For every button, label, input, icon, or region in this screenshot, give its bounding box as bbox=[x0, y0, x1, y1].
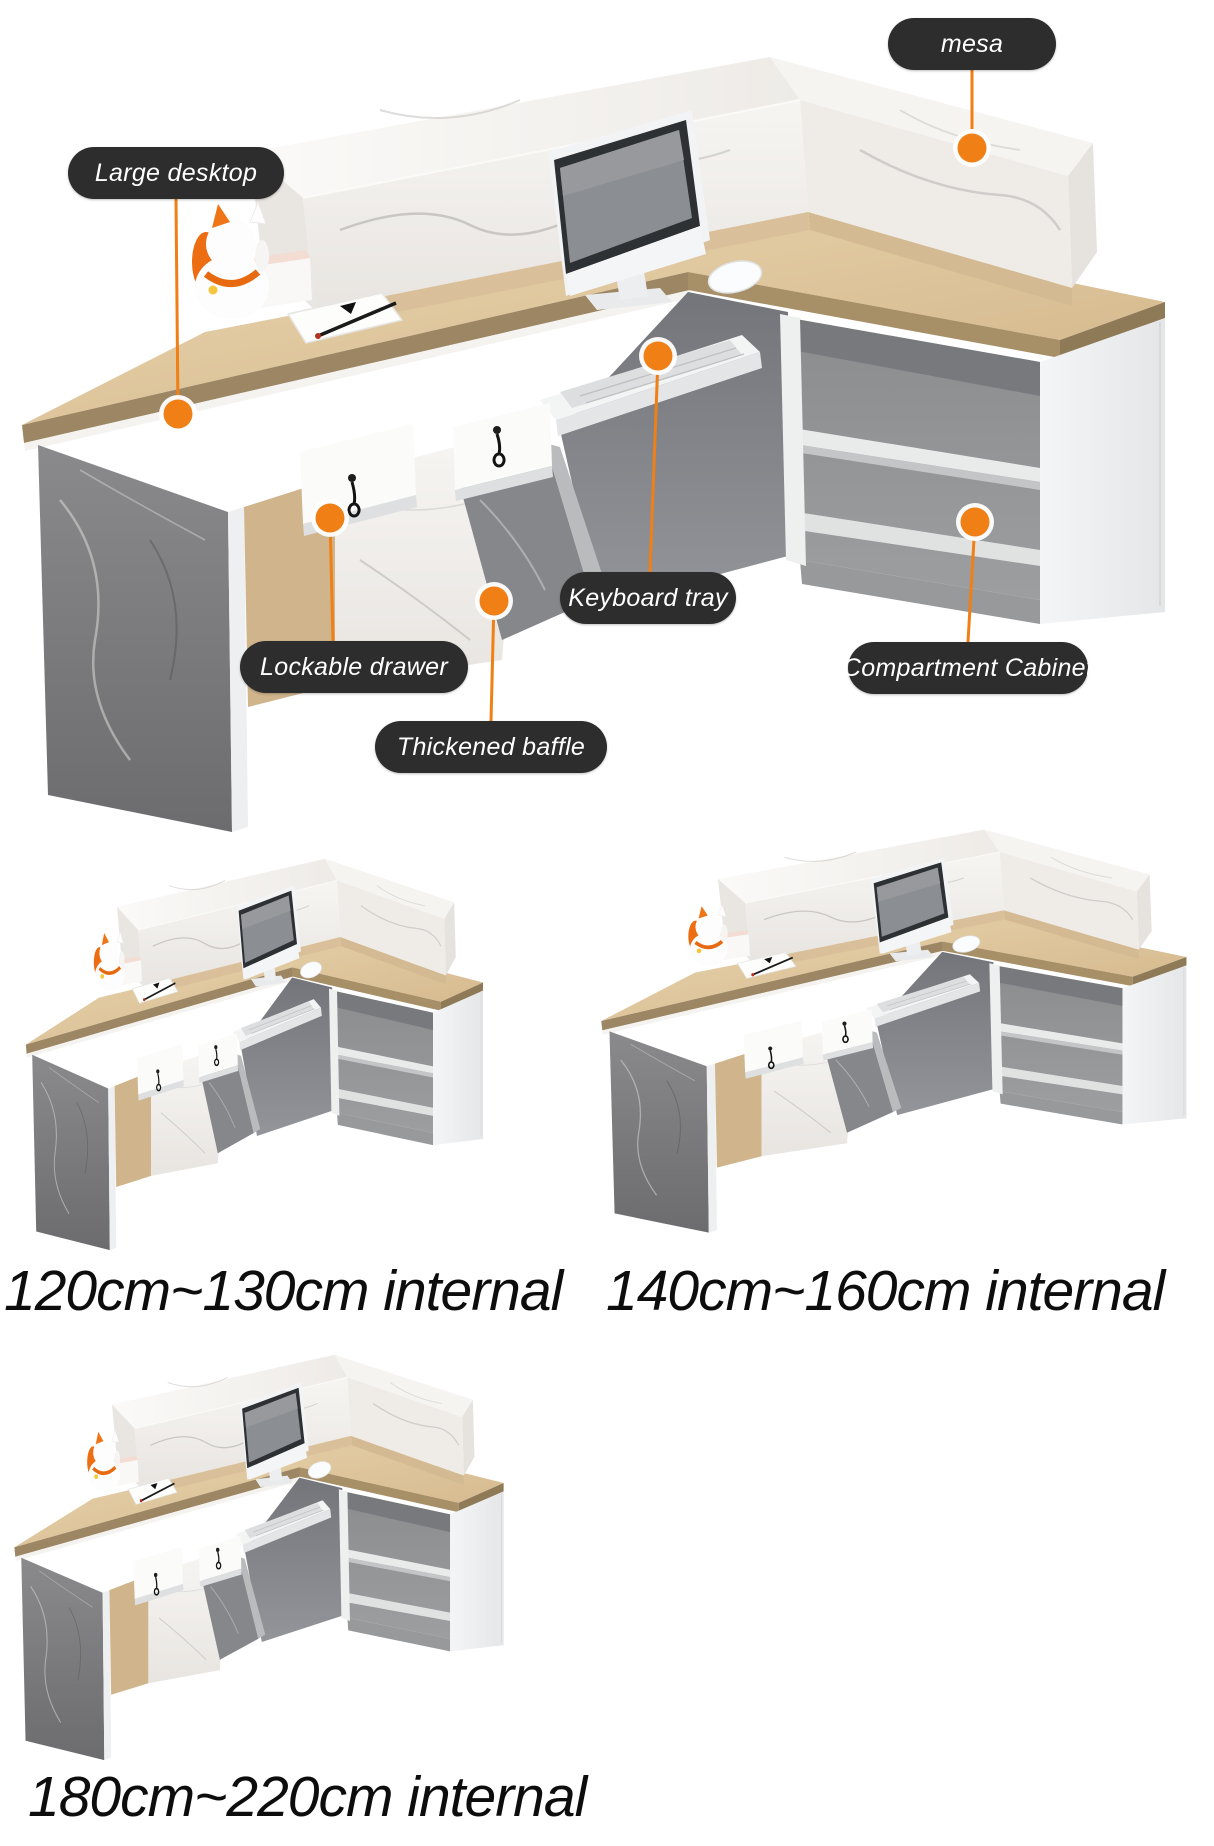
callout-dot-lockable-drawer bbox=[311, 499, 349, 537]
callout-label-compartment-cabinet: Compartment Cabinet bbox=[843, 654, 1093, 683]
variant-desk-medium bbox=[601, 830, 1186, 1233]
callout-dot-keyboard-tray bbox=[639, 337, 677, 375]
product-infographic: mesa Large desktop Lockable drawer Keybo… bbox=[0, 0, 1214, 1846]
callout-label-mesa: mesa bbox=[941, 30, 1003, 59]
callout-line-large-desktop bbox=[176, 199, 178, 414]
callout-dot-large-desktop bbox=[159, 395, 197, 433]
callout-pill-thickened-baffle: Thickened baffle bbox=[375, 721, 607, 773]
lucky-cat-figurine bbox=[192, 202, 269, 319]
callout-dot-compartment-cabinet bbox=[956, 503, 994, 541]
size-caption-large: 180cm~220cm internal bbox=[28, 1764, 586, 1830]
callout-pill-mesa: mesa bbox=[888, 18, 1056, 70]
callout-label-keyboard-tray: Keyboard tray bbox=[568, 584, 728, 613]
variant-desk-small bbox=[26, 859, 483, 1250]
callout-pill-lockable-drawer: Lockable drawer bbox=[240, 641, 468, 693]
variant-desk-large bbox=[14, 1355, 503, 1760]
size-caption-small: 120cm~130cm internal bbox=[4, 1258, 562, 1324]
callout-pill-compartment-cabinet: Compartment Cabinet bbox=[848, 642, 1088, 694]
callout-label-thickened-baffle: Thickened baffle bbox=[397, 733, 585, 762]
callout-dot-thickened-baffle bbox=[475, 582, 513, 620]
callout-label-large-desktop: Large desktop bbox=[95, 159, 257, 188]
callout-pill-keyboard-tray: Keyboard tray bbox=[560, 572, 736, 624]
left-side-panel bbox=[38, 445, 248, 832]
callout-dot-mesa bbox=[953, 129, 991, 167]
size-caption-medium: 140cm~160cm internal bbox=[606, 1258, 1164, 1324]
callout-pill-large-desktop: Large desktop bbox=[68, 147, 284, 199]
reception-desk-illustration bbox=[0, 0, 1214, 1846]
callout-label-lockable-drawer: Lockable drawer bbox=[260, 653, 448, 682]
